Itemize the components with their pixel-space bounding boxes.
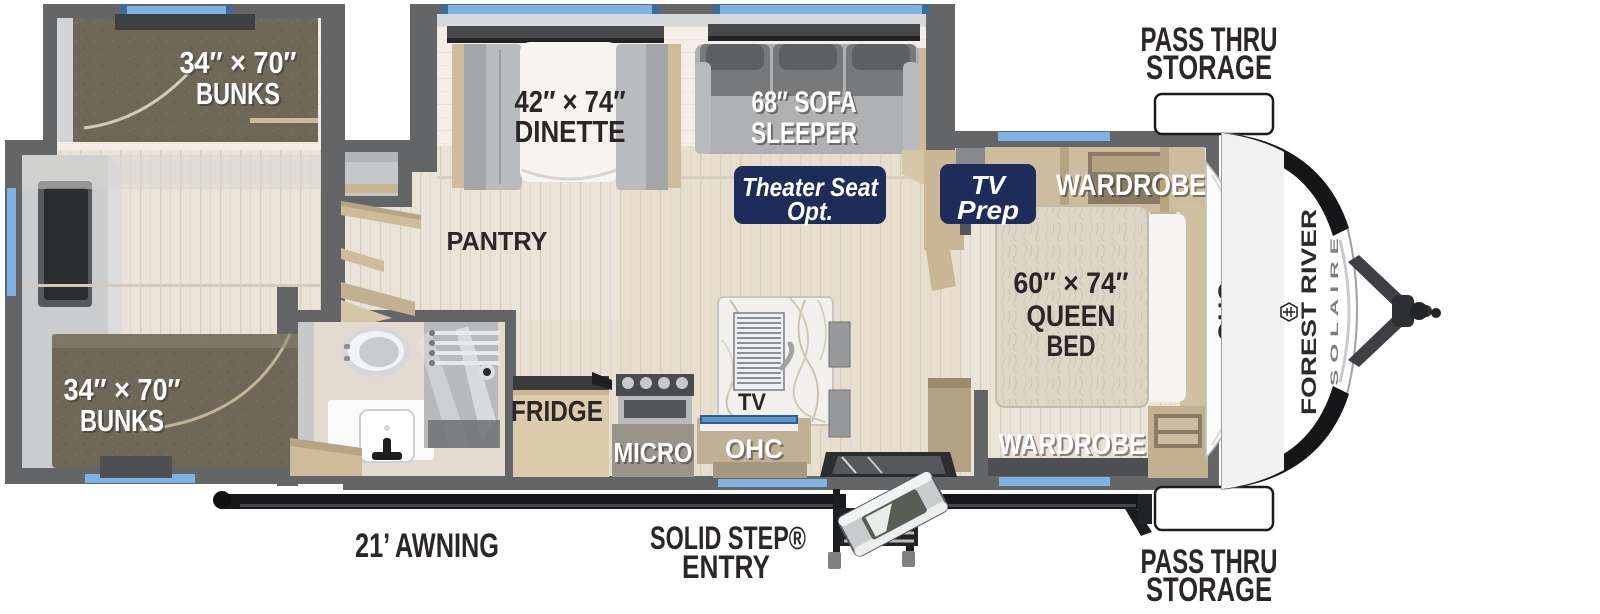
svg-text:ENTRY: ENTRY	[682, 549, 770, 585]
svg-text:WARDROBE: WARDROBE	[999, 429, 1146, 461]
svg-text:60″ × 74″: 60″ × 74″	[1014, 267, 1129, 300]
svg-text:SLEEPER: SLEEPER	[751, 117, 857, 150]
svg-text:WARDROBE: WARDROBE	[1056, 169, 1206, 202]
svg-text:STORAGE: STORAGE	[1146, 49, 1272, 87]
svg-text:BED: BED	[1047, 330, 1096, 363]
svg-text:STORAGE: STORAGE	[1146, 571, 1272, 609]
svg-text:BUNKS: BUNKS	[80, 403, 164, 438]
svg-text:S O L A I R E: S O L A I R E	[1329, 238, 1341, 386]
svg-text:Opt.: Opt.	[787, 196, 833, 226]
svg-text:DINETTE: DINETTE	[515, 114, 626, 149]
svg-text:34″ × 70″: 34″ × 70″	[64, 372, 181, 407]
svg-text:68″ SOFA: 68″ SOFA	[752, 86, 857, 119]
svg-text:21’ AWNING: 21’ AWNING	[355, 527, 499, 565]
svg-text:FOREST RIVER: FOREST RIVER	[1298, 209, 1321, 415]
svg-text:TV: TV	[738, 389, 766, 416]
svg-text:QUEEN: QUEEN	[1027, 300, 1116, 333]
svg-text:FRIDGE: FRIDGE	[511, 396, 603, 428]
svg-text:BUNKS: BUNKS	[196, 76, 280, 111]
svg-text:34″ × 70″: 34″ × 70″	[180, 45, 297, 80]
svg-text:OHC: OHC	[725, 434, 783, 464]
svg-text:PANTRY: PANTRY	[447, 226, 548, 256]
svg-text:MICRO: MICRO	[614, 437, 693, 468]
svg-text:Prep: Prep	[957, 195, 1019, 225]
